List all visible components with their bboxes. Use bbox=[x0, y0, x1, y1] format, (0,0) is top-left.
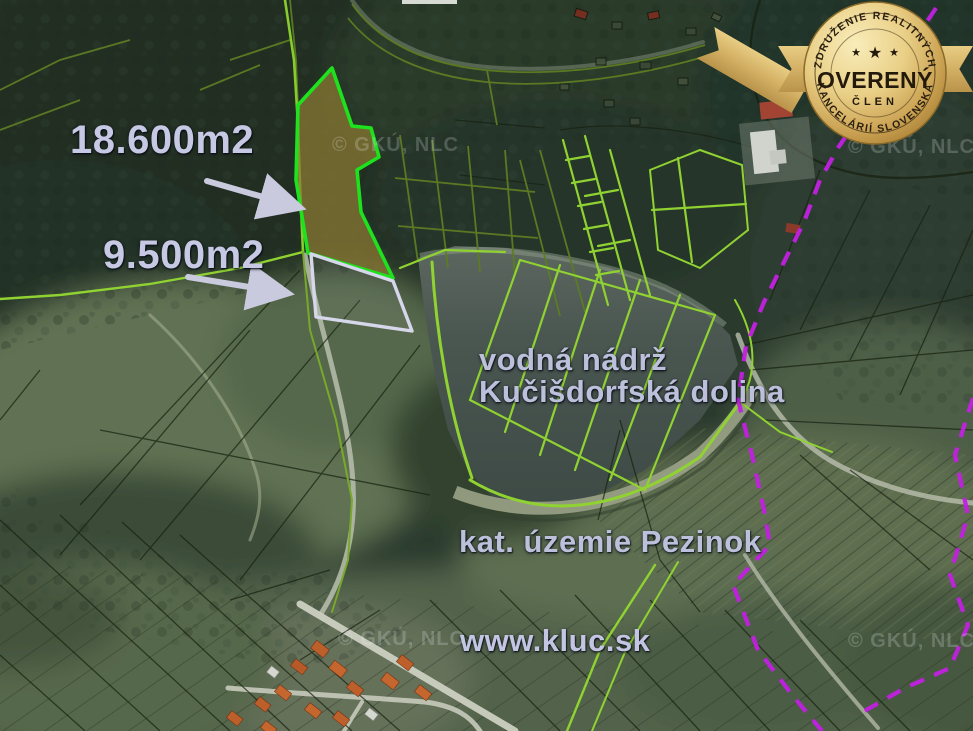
watermark-gku: © GKÚ, NLC bbox=[332, 134, 459, 157]
badge-star-center: ★ bbox=[868, 45, 882, 62]
watermark-gku: © GKÚ, NLC bbox=[338, 628, 465, 651]
label-area-9500: 9.500m2 bbox=[103, 233, 264, 278]
satellite-map: 18.600m2 9.500m2 vodná nádrž Kučišdorfsk… bbox=[0, 0, 973, 731]
label-water-reservoir: vodná nádrž Kučišdorfská dolina bbox=[479, 344, 785, 407]
verified-member-badge: ZDRUŽENIE REALITNÝCH KANCELÁRIÍ SLOVENSK… bbox=[690, 0, 973, 160]
watermark-gku: © GKÚ, NLC bbox=[848, 630, 973, 653]
label-website: www.kluc.sk bbox=[460, 623, 650, 659]
label-area-18600: 18.600m2 bbox=[70, 118, 254, 163]
badge-title: OVERENÝ bbox=[817, 66, 933, 93]
label-water-line2: Kučišdorfská dolina bbox=[479, 376, 785, 408]
label-water-line1: vodná nádrž bbox=[479, 344, 785, 376]
label-cadastral-area: kat. územie Pezinok bbox=[459, 524, 761, 560]
badge-star-left: ★ bbox=[851, 47, 861, 59]
badge-subtitle: ČLEN bbox=[852, 95, 898, 108]
badge-star-right: ★ bbox=[889, 47, 899, 59]
badge-seal: ZDRUŽENIE REALITNÝCH KANCELÁRIÍ SLOVENSK… bbox=[800, 0, 950, 148]
